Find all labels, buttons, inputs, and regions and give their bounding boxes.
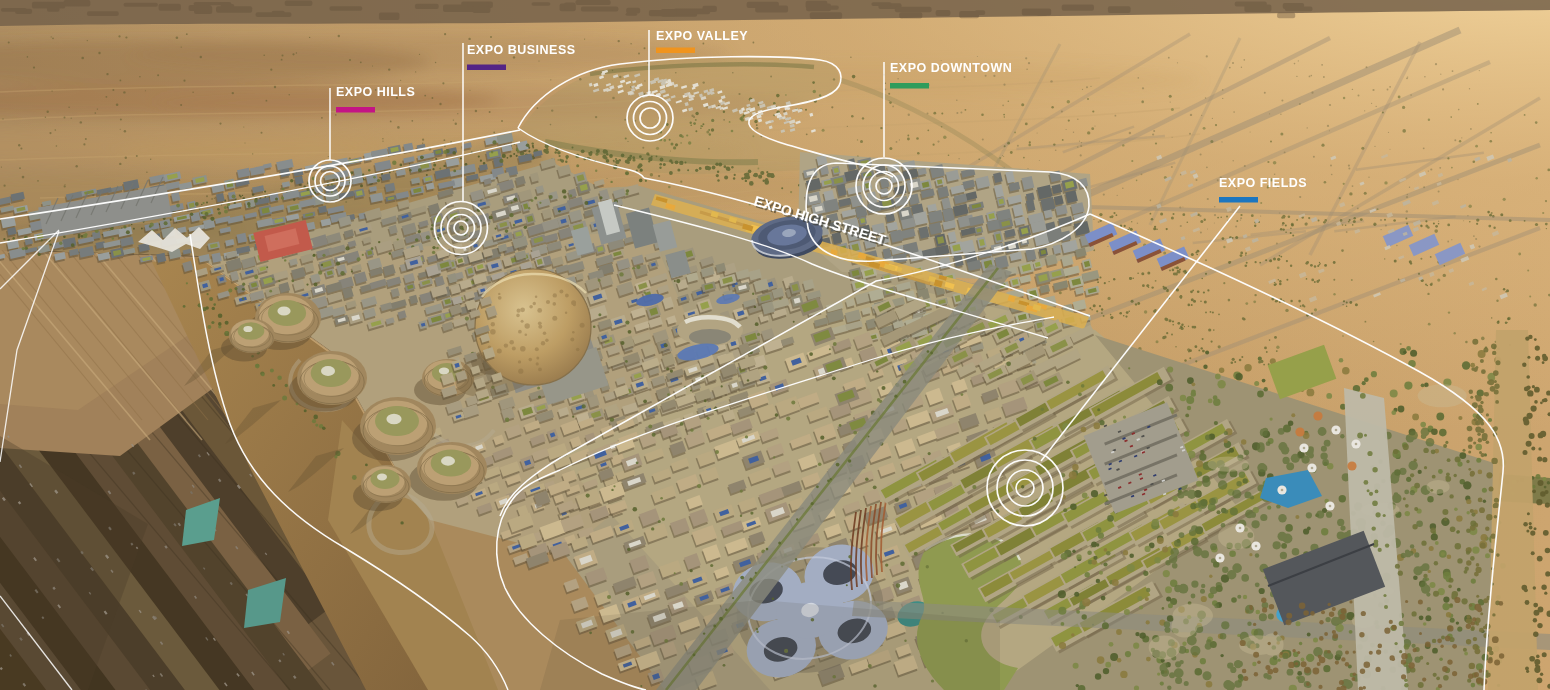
svg-text:EXPO DOWNTOWN: EXPO DOWNTOWN bbox=[890, 61, 1012, 75]
svg-text:EXPO HILLS: EXPO HILLS bbox=[336, 85, 415, 99]
svg-text:EXPO FIELDS: EXPO FIELDS bbox=[1219, 176, 1307, 190]
svg-text:EXPO BUSINESS: EXPO BUSINESS bbox=[467, 43, 576, 57]
svg-text:EXPO VALLEY: EXPO VALLEY bbox=[656, 29, 748, 43]
